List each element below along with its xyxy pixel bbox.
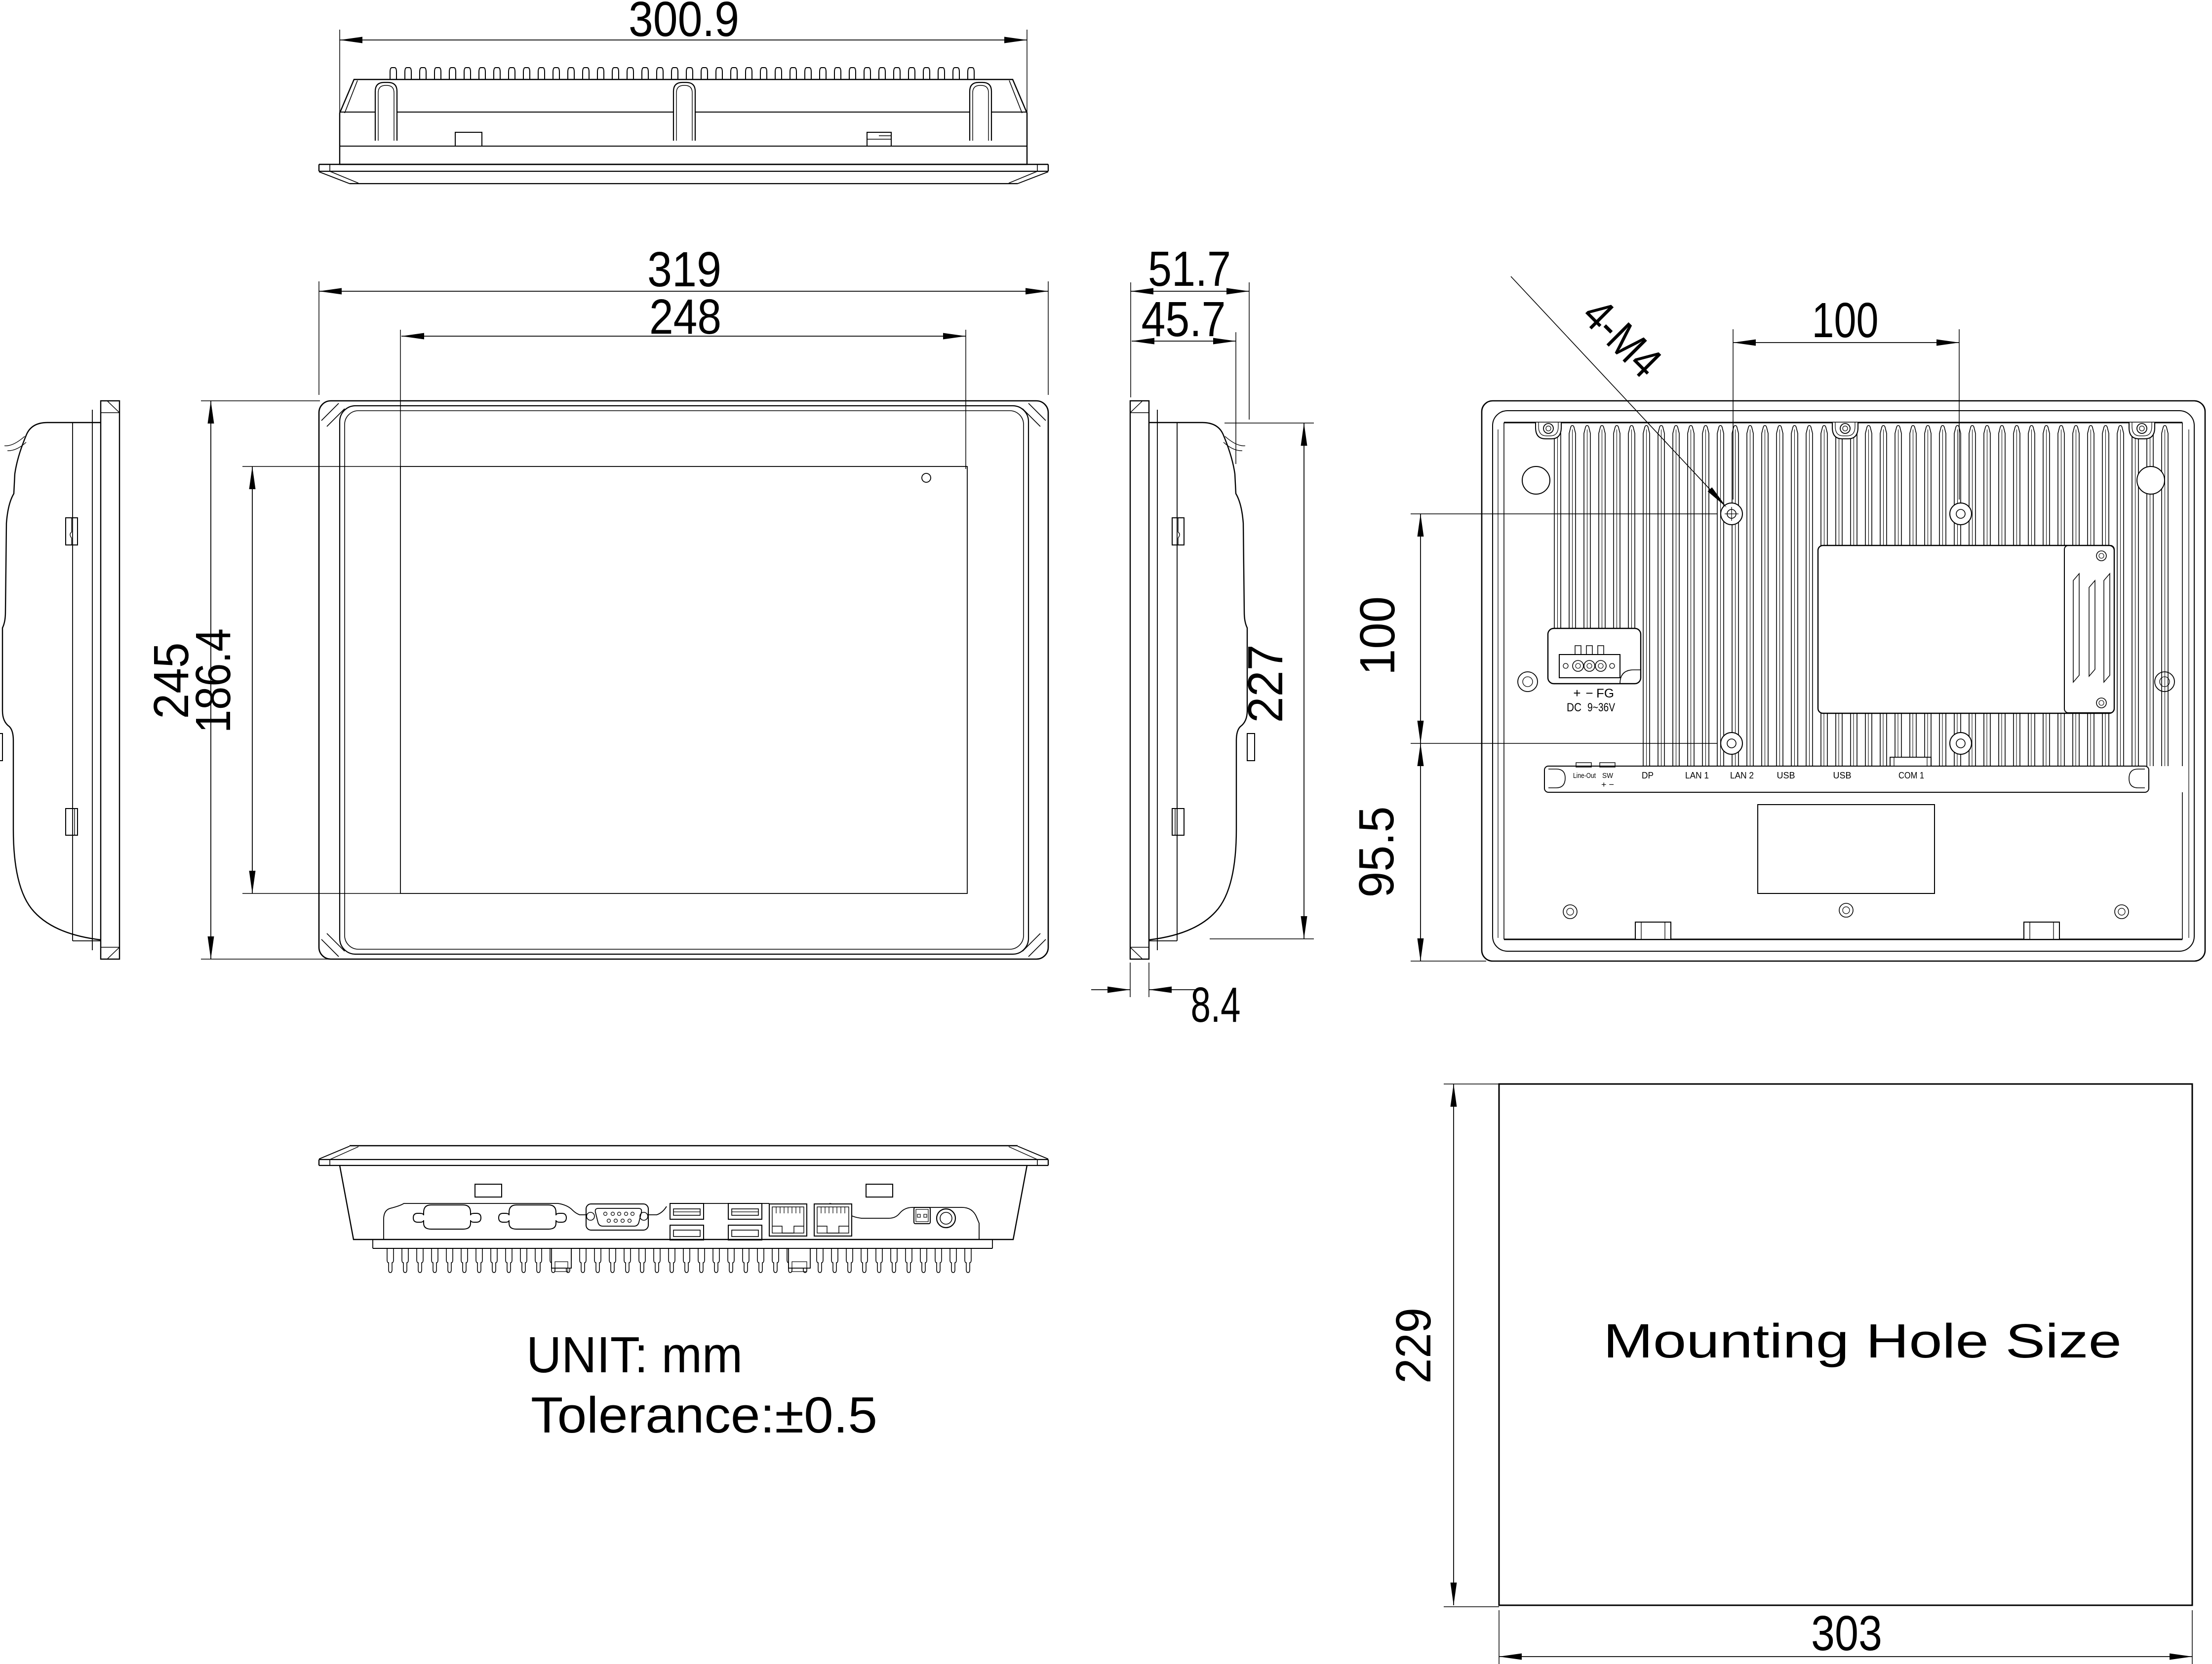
svg-text:COM 1: COM 1 xyxy=(1898,771,1924,780)
svg-text:51.7: 51.7 xyxy=(1148,241,1231,297)
svg-text:186.4: 186.4 xyxy=(186,628,241,733)
svg-text:9~36V: 9~36V xyxy=(1587,701,1615,714)
svg-text:LAN 2: LAN 2 xyxy=(1730,771,1754,780)
svg-text:303: 303 xyxy=(1811,1606,1882,1661)
svg-text:DC: DC xyxy=(1567,701,1581,714)
svg-text:DP: DP xyxy=(1642,771,1654,780)
svg-text:−: − xyxy=(1585,686,1593,700)
svg-text:UNIT: mm: UNIT: mm xyxy=(526,1326,743,1383)
svg-text:95.5: 95.5 xyxy=(1349,807,1404,898)
svg-text:LAN 1: LAN 1 xyxy=(1685,771,1709,780)
svg-text:+: + xyxy=(1573,686,1580,700)
svg-text:FG: FG xyxy=(1596,687,1614,700)
svg-text:SW: SW xyxy=(1602,772,1614,780)
svg-text:USB: USB xyxy=(1833,771,1852,780)
svg-text:100: 100 xyxy=(1812,293,1879,348)
svg-text:100: 100 xyxy=(1350,596,1405,675)
svg-text:Mounting Hole Size: Mounting Hole Size xyxy=(1603,1314,2122,1368)
svg-text:USB: USB xyxy=(1777,771,1795,780)
svg-text:8.4: 8.4 xyxy=(1191,977,1241,1033)
svg-text:+ −: + − xyxy=(1601,780,1614,789)
svg-text:Tolerance:±0.5: Tolerance:±0.5 xyxy=(531,1387,877,1443)
svg-text:229: 229 xyxy=(1386,1308,1441,1384)
svg-text:227: 227 xyxy=(1238,645,1293,723)
svg-text:Line-Out: Line-Out xyxy=(1573,772,1596,780)
